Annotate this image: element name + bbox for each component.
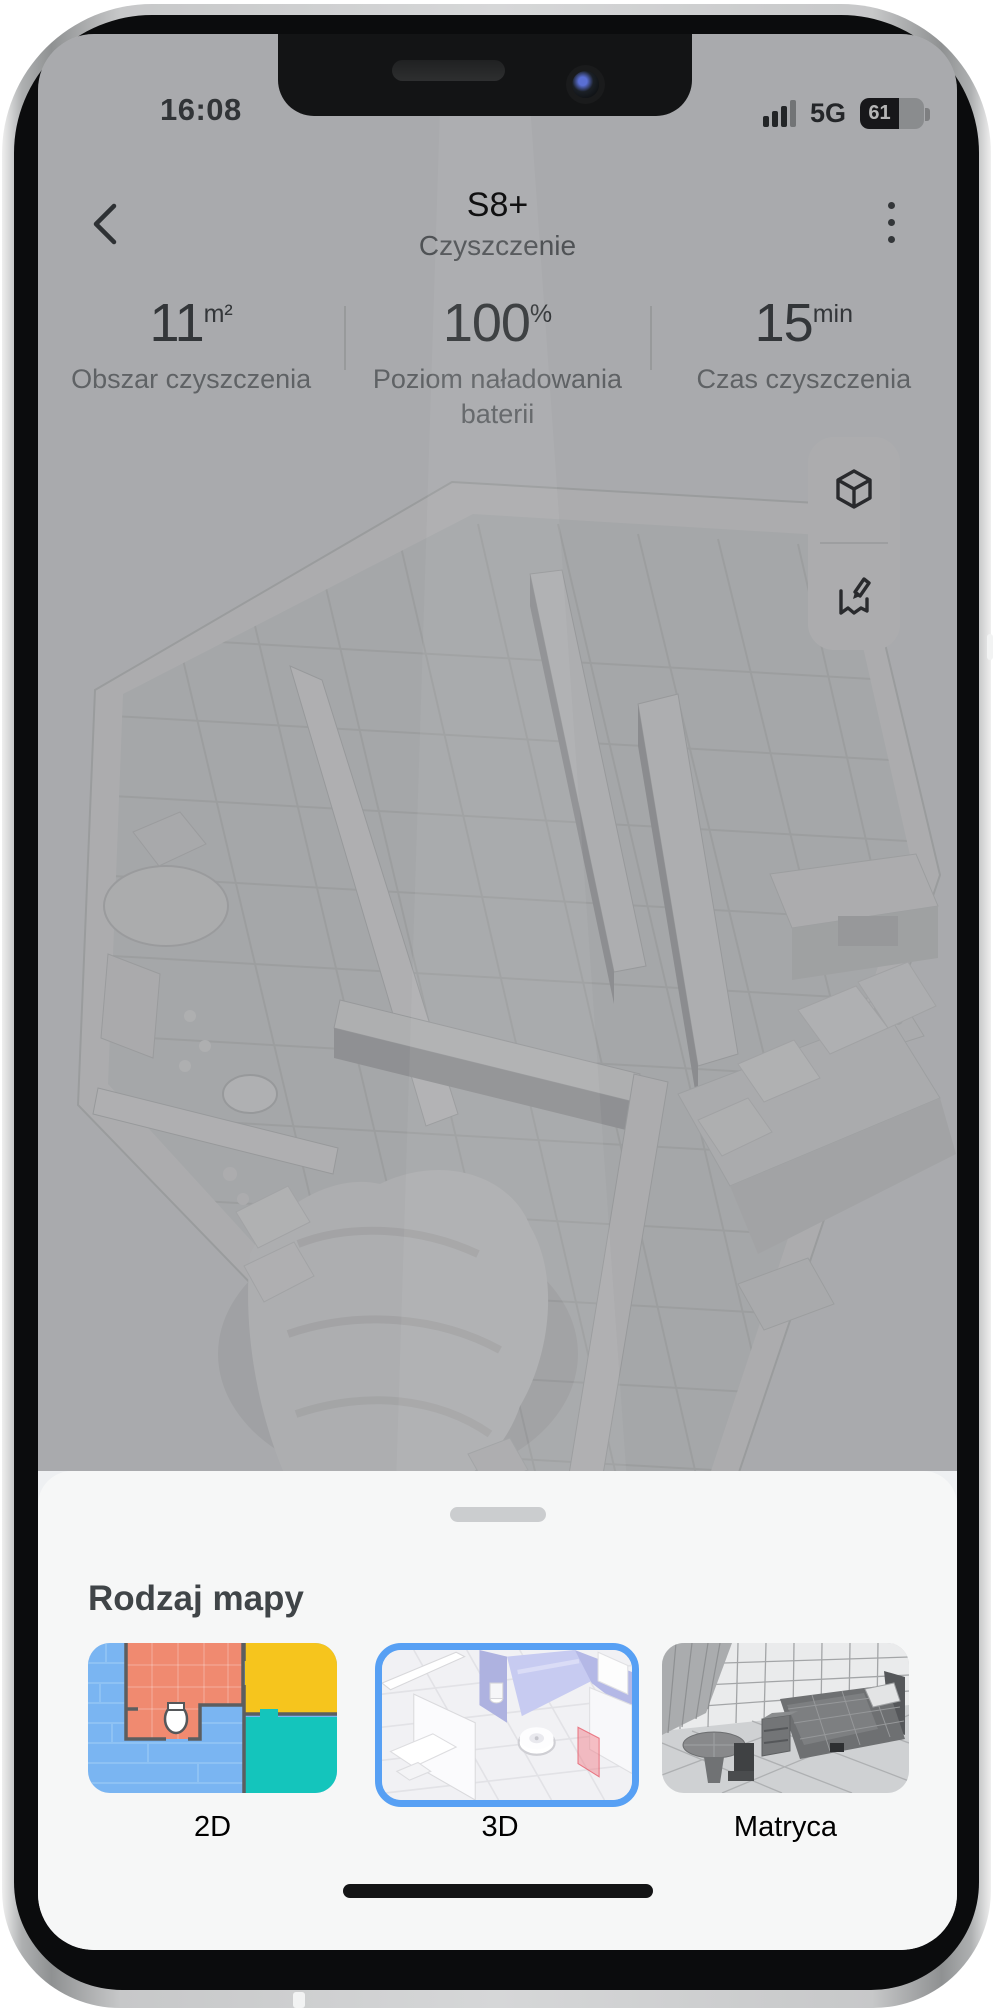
antenna-line bbox=[987, 634, 993, 660]
map-matrix-thumbnail bbox=[662, 1643, 909, 1793]
map-type-label-2d: 2D bbox=[88, 1811, 337, 1844]
speaker-grille bbox=[392, 60, 505, 81]
antenna-line bbox=[293, 1992, 305, 2008]
map-type-bottom-sheet: Rodzaj mapy bbox=[38, 1471, 957, 1950]
map-type-option-3d[interactable] bbox=[375, 1643, 639, 1807]
map-type-label-3d: 3D bbox=[375, 1811, 625, 1844]
phone-screen: 16:08 5G 61 S8+ Czyszczenie 11m² Obszar … bbox=[38, 34, 957, 1950]
map-type-option-matrix[interactable] bbox=[662, 1643, 909, 1793]
power-button bbox=[984, 430, 993, 618]
home-indicator[interactable] bbox=[343, 1884, 653, 1898]
front-camera bbox=[572, 71, 599, 98]
map-type-label-matrix: Matryca bbox=[662, 1811, 909, 1844]
volume-up-button bbox=[0, 370, 9, 468]
map-2d-thumbnail bbox=[88, 1643, 337, 1793]
mute-switch bbox=[0, 264, 9, 316]
volume-down-button bbox=[0, 494, 9, 590]
map-3d-thumbnail bbox=[382, 1650, 632, 1800]
sheet-drag-handle[interactable] bbox=[450, 1507, 546, 1522]
map-type-option-2d[interactable] bbox=[88, 1643, 337, 1793]
notch bbox=[278, 34, 692, 116]
sheet-title: Rodzaj mapy bbox=[88, 1579, 304, 1619]
